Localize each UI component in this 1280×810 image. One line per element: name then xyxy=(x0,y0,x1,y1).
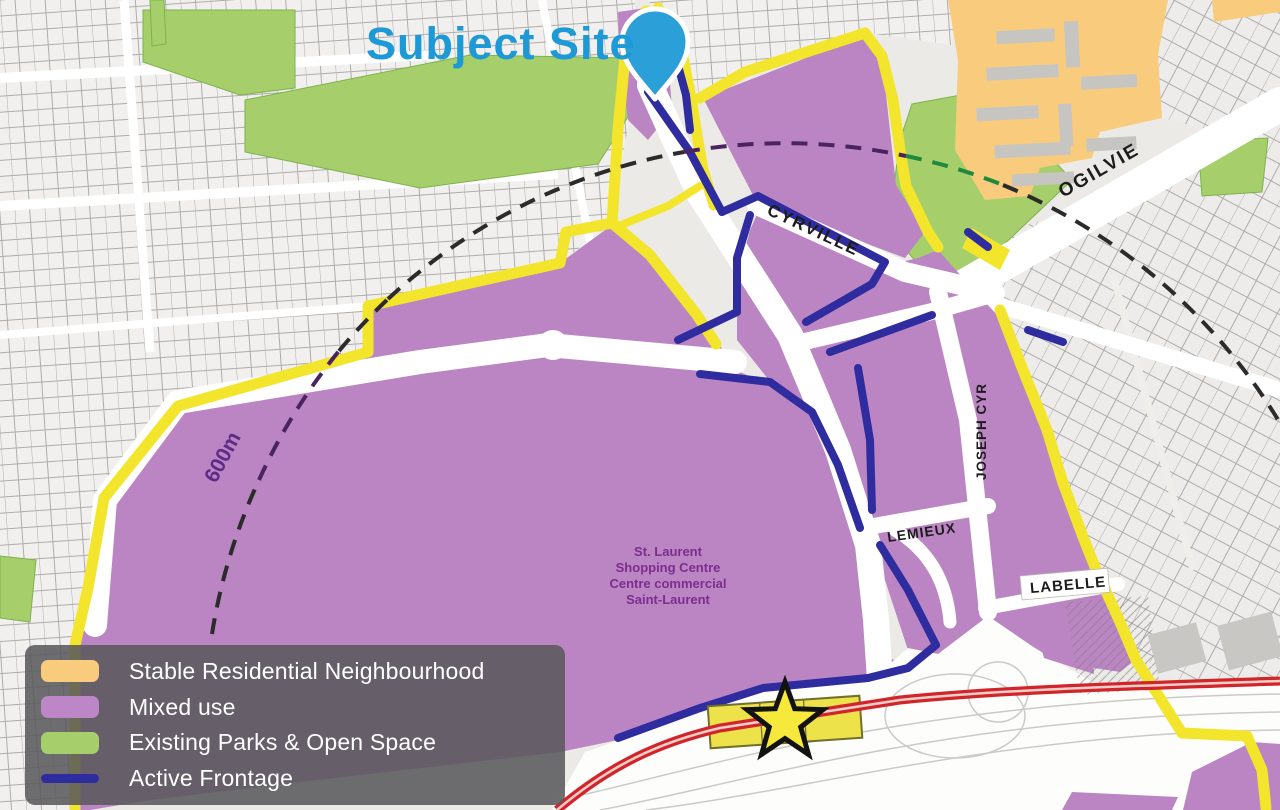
svg-text:Shopping Centre: Shopping Centre xyxy=(616,560,721,575)
legend-row-active-frontage: Active Frontage xyxy=(41,762,549,795)
active-frontage-swatch xyxy=(41,774,99,783)
legend-row-stable-residential: Stable Residential Neighbourhood xyxy=(41,655,549,688)
subject-site-title: Subject Site xyxy=(366,18,636,70)
svg-text:Centre commercial: Centre commercial xyxy=(609,576,726,591)
legend-panel: Stable Residential Neighbourhood Mixed u… xyxy=(25,645,565,805)
svg-text:St. Laurent: St. Laurent xyxy=(634,544,703,559)
legend-label: Active Frontage xyxy=(129,765,293,792)
legend-label: Stable Residential Neighbourhood xyxy=(129,658,484,685)
stable-residential-swatch xyxy=(41,660,99,682)
street-label-joseph-cyr: JOSEPH CYR xyxy=(974,383,989,480)
road-bulge xyxy=(538,330,568,360)
legend-row-parks: Existing Parks & Open Space xyxy=(41,727,549,760)
legend-label: Existing Parks & Open Space xyxy=(129,729,436,756)
parks-swatch xyxy=(41,732,99,754)
svg-text:Saint-Laurent: Saint-Laurent xyxy=(626,592,710,607)
legend-label: Mixed use xyxy=(129,694,236,721)
zoning-map: CYRVILLE OGILVIE JOSEPH CYR LEMIEUX LABE… xyxy=(0,0,1280,810)
mixed-use-swatch xyxy=(41,696,99,718)
legend-row-mixed-use: Mixed use xyxy=(41,691,549,724)
